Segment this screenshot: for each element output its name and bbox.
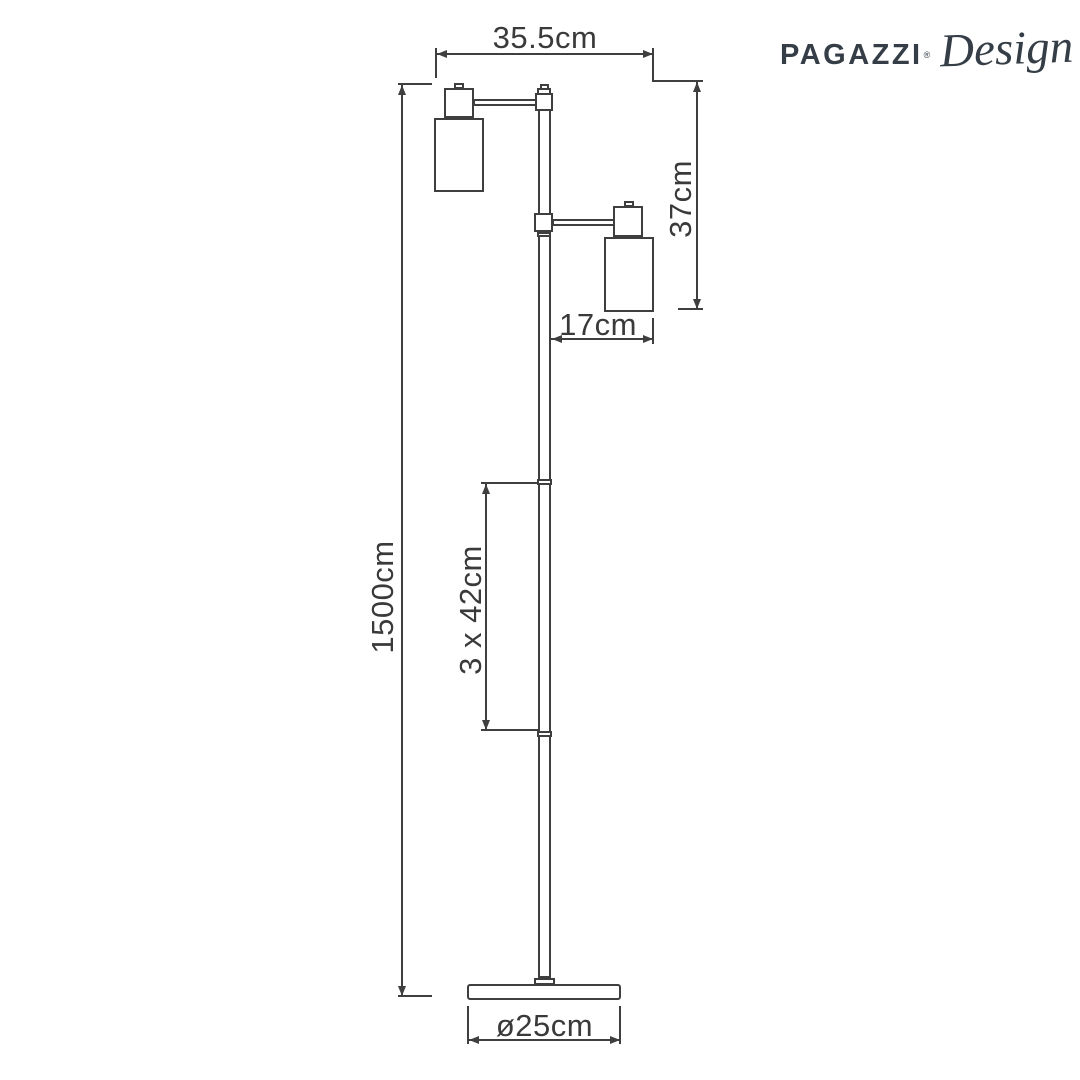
brand-logo: PAGAZZI® Design (780, 26, 1070, 86)
dim-base-diameter-label: ø25cm (468, 1010, 621, 1042)
arrow-up-icon (482, 484, 490, 494)
dim-top-width-label: 35.5cm (436, 22, 654, 54)
arrow-down-icon (482, 720, 490, 730)
arrow-up-icon (693, 82, 701, 92)
trademark-icon: ® (924, 50, 931, 60)
dim-head-height-label: 37cm (665, 149, 697, 249)
left-socket (444, 88, 474, 118)
diagram-canvas: PAGAZZI® Design 35.5cm 37cm (0, 0, 1080, 1080)
right-shade (604, 237, 654, 312)
right-arm (552, 219, 615, 226)
left-arm (473, 99, 537, 106)
mid-connector (534, 213, 553, 232)
top-connector (535, 93, 553, 111)
left-shade (434, 118, 484, 192)
right-socket (613, 206, 643, 237)
brand-name: PAGAZZI® (780, 39, 930, 72)
lamp-base (467, 984, 621, 1000)
arrow-down-icon (693, 299, 701, 309)
dim-total-height-label: 1500cm (367, 487, 399, 707)
arrow-down-icon (398, 986, 406, 996)
dim-arm-offset-label: 17cm (543, 309, 653, 341)
pole-joint-lower (537, 731, 552, 737)
dim-total-height-line (401, 84, 403, 997)
brand-suffix: Design (939, 24, 1074, 76)
arrow-up-icon (398, 85, 406, 95)
mid-connector-collar (537, 232, 551, 237)
pole-joint-upper (537, 479, 552, 485)
dim-pole-sections-label: 3 x 42cm (455, 530, 487, 690)
